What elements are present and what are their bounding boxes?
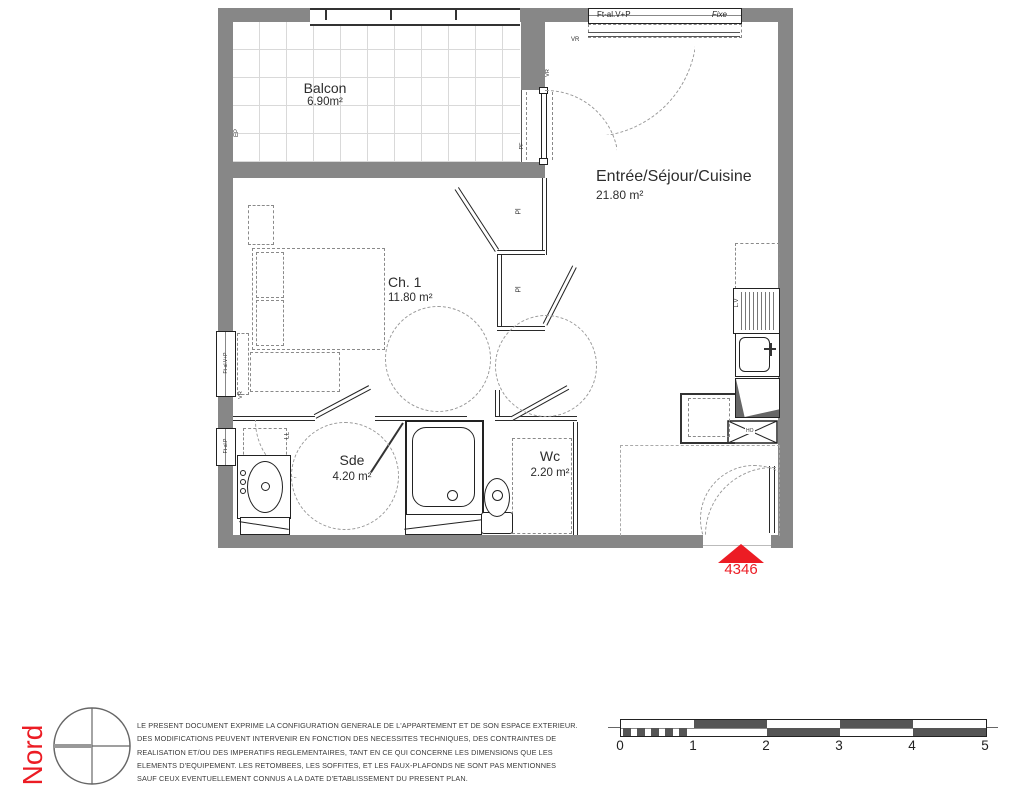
scale-number: 3 bbox=[828, 738, 850, 753]
unit-number: 4346 bbox=[712, 561, 770, 578]
closet-label: Pl bbox=[516, 205, 523, 219]
railing bbox=[310, 8, 520, 26]
scale-seg bbox=[913, 728, 986, 736]
wall-top-a bbox=[218, 8, 310, 22]
scale-number: 5 bbox=[974, 738, 996, 753]
fridge-slot bbox=[735, 243, 780, 289]
wall-right bbox=[778, 8, 793, 548]
room-area: 4.20 m² bbox=[312, 471, 392, 483]
sink-vanity bbox=[237, 455, 291, 519]
sink-dot bbox=[240, 488, 246, 494]
shelf-fold-line bbox=[239, 521, 289, 530]
roller-shutter-label: VR bbox=[545, 66, 551, 80]
kitchen-sink-basin bbox=[739, 337, 770, 372]
wall-closet-right bbox=[542, 178, 547, 255]
wall-balcony-divider bbox=[218, 162, 545, 178]
roller-shutter-label: VR bbox=[571, 37, 579, 43]
vanity-shelf bbox=[240, 517, 290, 535]
scale-number: 1 bbox=[682, 738, 704, 753]
disclaimer-line: SAUF CEUX EVENTUELLEMENT CONNUS A LA DAT… bbox=[137, 772, 607, 785]
sink-dot bbox=[240, 479, 246, 485]
window-label: Ft-al.V+P bbox=[223, 343, 229, 383]
pillow bbox=[256, 300, 284, 346]
wall-top-b bbox=[520, 8, 588, 22]
scale-seg bbox=[694, 720, 767, 728]
wall-stub bbox=[495, 390, 500, 416]
balcony-door-label: PF bbox=[519, 139, 525, 153]
scale-bar-body bbox=[620, 719, 987, 737]
toilet-flush bbox=[492, 490, 503, 501]
closet-label: Pl bbox=[516, 283, 523, 297]
room-name: Wc bbox=[518, 448, 582, 464]
window-label: Ft-al.P bbox=[223, 429, 229, 463]
scale-seg bbox=[767, 728, 840, 736]
bedroom-bench bbox=[250, 352, 340, 392]
railing-tick bbox=[455, 10, 457, 20]
dishwasher-label: L.V bbox=[734, 294, 740, 312]
worktop bbox=[735, 378, 780, 418]
scale-number: 0 bbox=[609, 738, 631, 753]
north-label: Nord bbox=[17, 720, 49, 790]
room-area: 21.80 m² bbox=[596, 188, 776, 202]
room-label-bedroom: Ch. 1 11.80 m² bbox=[388, 274, 478, 304]
room-area: 2.20 m² bbox=[518, 467, 582, 479]
bathtub-inner bbox=[412, 427, 475, 507]
scale-subseg bbox=[637, 728, 645, 736]
window-left-upper: Ft-al.V+P bbox=[216, 331, 236, 397]
railing-tick bbox=[390, 10, 392, 20]
appliance-label: HO bbox=[745, 428, 755, 434]
turning-circle-entrance bbox=[700, 465, 780, 536]
compass-icon bbox=[52, 706, 132, 786]
balcony-door-swing-arc bbox=[545, 90, 617, 162]
room-name: Ch. 1 bbox=[388, 274, 478, 290]
sink-dot bbox=[240, 470, 246, 476]
railing-tick bbox=[325, 10, 327, 20]
window-label-fixe: Fixe bbox=[712, 10, 727, 19]
faucet-handle bbox=[764, 348, 776, 350]
window-top: Ft-al.V+P Fixe bbox=[588, 8, 742, 24]
room-label-sde: Sde 4.20 m² bbox=[312, 452, 392, 483]
scale-subseg bbox=[651, 728, 659, 736]
scale-subseg bbox=[679, 728, 687, 736]
wall-closet-mid bbox=[497, 250, 545, 255]
floor-plan-page: Balcon 6.90m² EP Ft-al.V+P Fixe VR PF VR… bbox=[0, 0, 1019, 800]
rainwater-pipe-label: EP bbox=[234, 126, 240, 140]
room-area: 11.80 m² bbox=[388, 292, 478, 304]
pillow bbox=[256, 252, 284, 298]
scale-seg bbox=[840, 720, 913, 728]
bathtub bbox=[405, 420, 484, 516]
kitchen-counter-inner bbox=[688, 398, 730, 437]
room-name: Sde bbox=[312, 452, 392, 468]
room-label-balcon: Balcon 6.90m² bbox=[255, 80, 395, 108]
roller-shutter-label: VR bbox=[238, 388, 244, 402]
scale-number: 2 bbox=[755, 738, 777, 753]
wall-balcony-door-column bbox=[521, 22, 545, 90]
entrance-clearance bbox=[620, 445, 780, 536]
disclaimer-line: DES MODIFICATIONS PEUVENT INTERVENIR EN … bbox=[137, 732, 607, 745]
room-label-wc: Wc 2.20 m² bbox=[518, 448, 582, 479]
scale-subseg bbox=[623, 728, 631, 736]
room-name: Entrée/Séjour/Cuisine bbox=[596, 168, 776, 186]
scale-subseg bbox=[665, 728, 673, 736]
nightstand bbox=[248, 205, 274, 245]
window-label-left: Ft-al.V+P bbox=[597, 10, 631, 19]
disclaimer: LE PRESENT DOCUMENT EXPRIME LA CONFIGURA… bbox=[137, 719, 607, 785]
bathtub-step bbox=[405, 514, 482, 535]
room-name: Balcon bbox=[255, 80, 395, 96]
room-label-living: Entrée/Séjour/Cuisine 21.80 m² bbox=[596, 168, 776, 202]
balcony-door-dash bbox=[526, 92, 527, 160]
kitchen-sink bbox=[735, 333, 780, 377]
wall-closet-left bbox=[497, 255, 502, 330]
wall-bottom-a bbox=[218, 535, 703, 548]
wall-bottom-b bbox=[771, 535, 793, 548]
disclaimer-line: ELEMENTS D'EQUIPEMENT. LES RETOMBEES, LE… bbox=[137, 759, 607, 772]
disclaimer-line: LE PRESENT DOCUMENT EXPRIME LA CONFIGURA… bbox=[137, 719, 607, 732]
wall-left bbox=[218, 8, 233, 548]
dishwasher-hatch bbox=[738, 292, 775, 330]
turning-circle-bedroom bbox=[385, 306, 491, 412]
wall-hall-3 bbox=[495, 416, 577, 421]
washing-machine-label: LL bbox=[284, 429, 291, 443]
roller-shutter-box bbox=[237, 333, 249, 395]
sink-drain bbox=[261, 482, 270, 491]
window-left-lower: Ft-al.P bbox=[216, 428, 236, 466]
step-fold-line bbox=[404, 519, 482, 529]
disclaimer-line: REALISATION ET/OU DES IMPERATIFS REGLEME… bbox=[137, 746, 607, 759]
worktop-shadow bbox=[736, 379, 779, 417]
turning-circle-hall bbox=[495, 315, 597, 417]
room-area: 6.90m² bbox=[255, 96, 395, 108]
bathtub-drain bbox=[447, 490, 458, 501]
closet-upper-door-leaf bbox=[455, 187, 499, 252]
dishwasher bbox=[733, 288, 780, 334]
scale-number: 4 bbox=[901, 738, 923, 753]
